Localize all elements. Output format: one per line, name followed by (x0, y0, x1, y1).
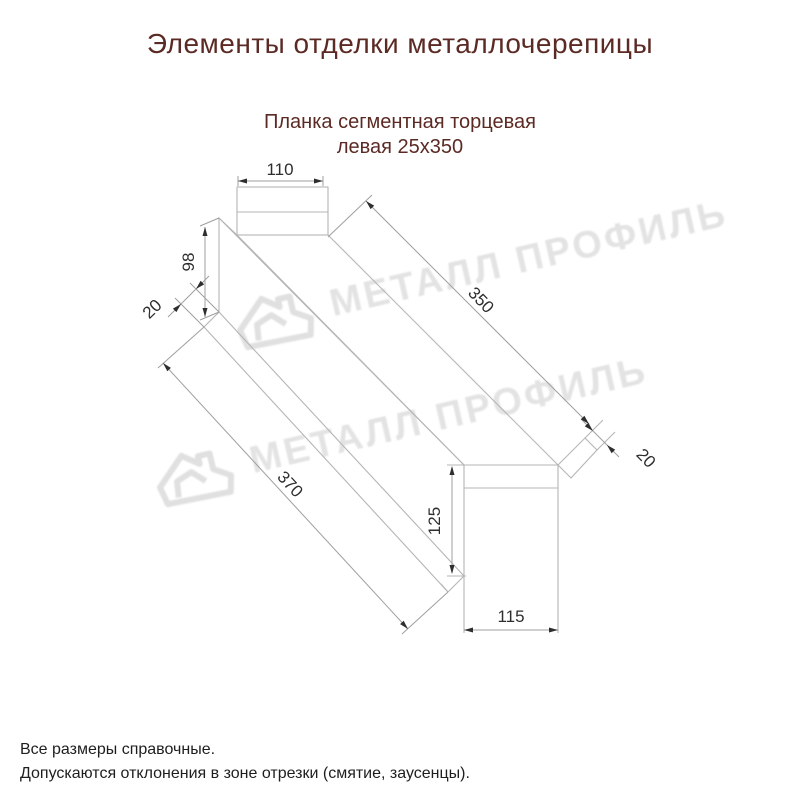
footer-note-2: Допускаются отклонения в зоне отрезки (с… (20, 762, 470, 786)
dim-label-top-length: 350 (464, 283, 497, 317)
dim-label-start-hem: 20 (139, 296, 166, 323)
footer-note-1: Все размеры справочные. (20, 738, 470, 762)
dim-label-end-hem: 20 (633, 445, 660, 472)
dimension-labels: 110 98 20 350 20 370 125 115 (139, 160, 660, 626)
footer-notes: Все размеры справочные. Допускаются откл… (20, 738, 470, 786)
dim-label-bottom-length: 370 (273, 467, 306, 501)
profile-outline (204, 187, 615, 633)
dim-label-top-flange-width: 110 (266, 160, 293, 179)
dim-label-end-face-width: 115 (497, 607, 524, 626)
dimension-lines (158, 176, 619, 634)
dim-label-start-face-height: 98 (179, 253, 198, 272)
technical-drawing: 110 98 20 350 20 370 125 115 (0, 0, 800, 800)
dimension-arrows (163, 179, 615, 633)
page: { "title": "Элементы отделки металлочере… (0, 0, 800, 800)
dim-label-end-face-height: 125 (425, 507, 444, 535)
